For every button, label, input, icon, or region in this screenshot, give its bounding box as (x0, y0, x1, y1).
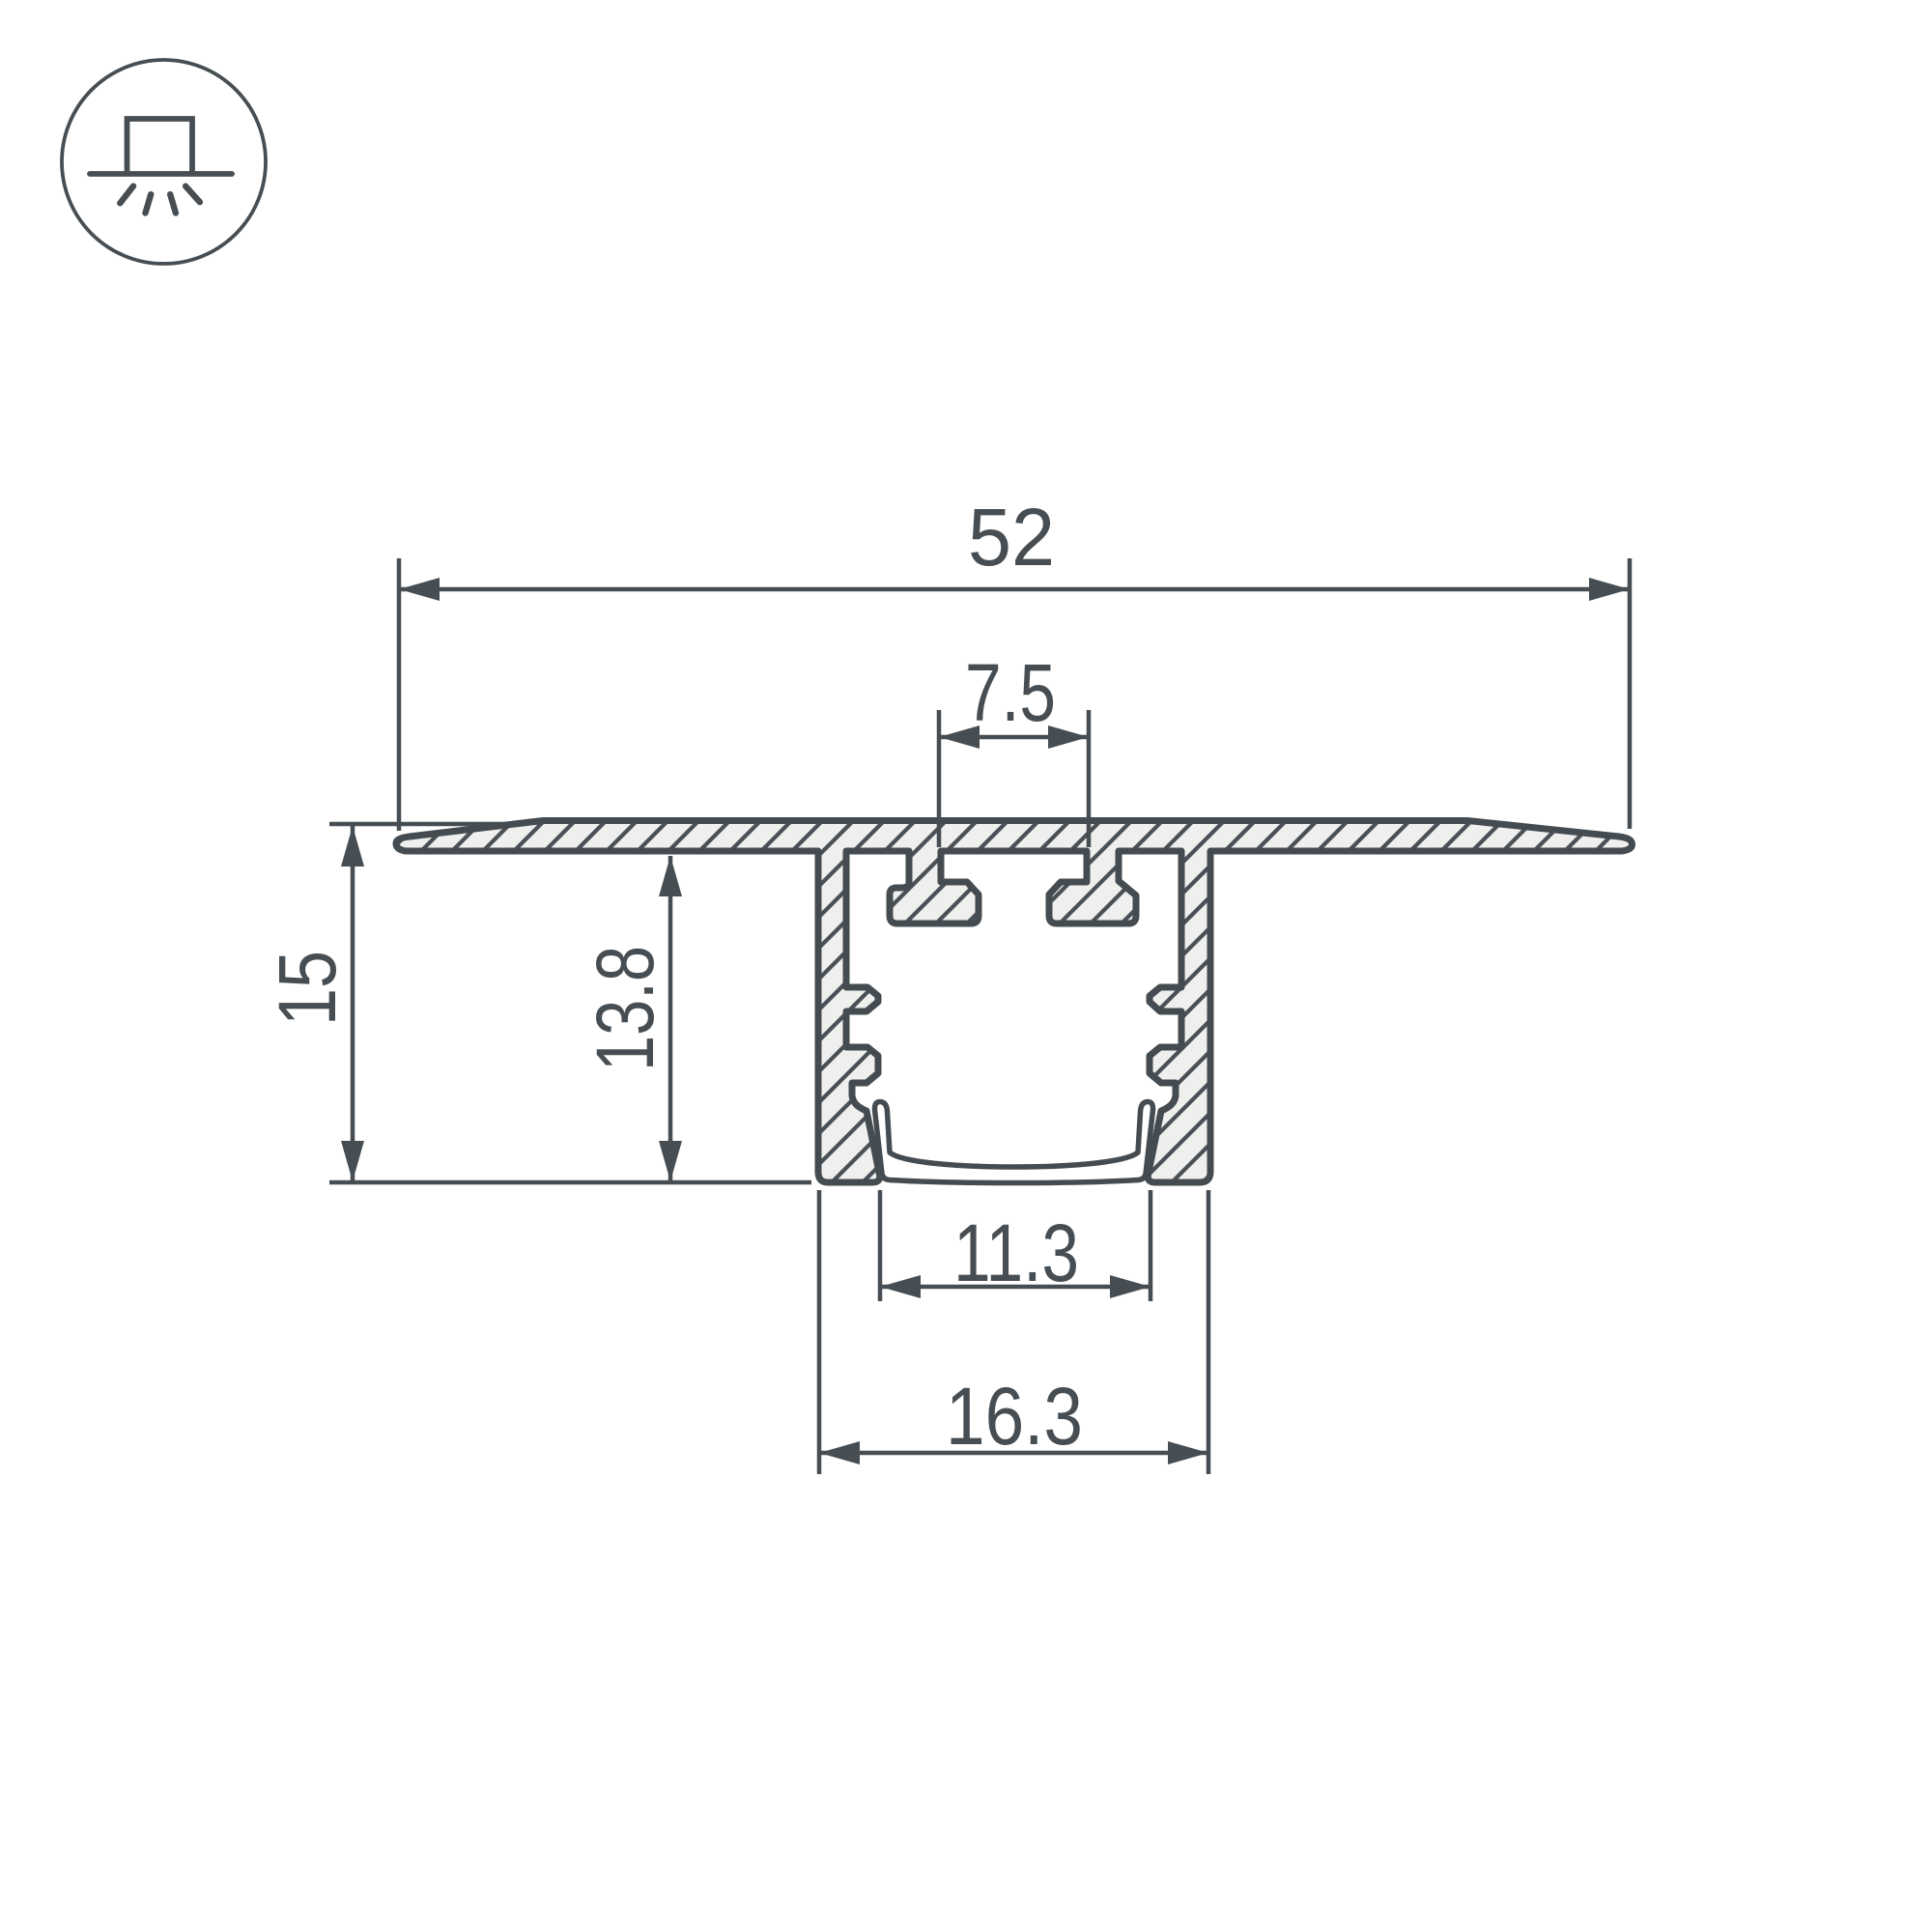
svg-text:7.5: 7.5 (965, 647, 1056, 738)
svg-text:52: 52 (968, 492, 1055, 582)
svg-text:11.3: 11.3 (953, 1207, 1079, 1298)
svg-text:13.8: 13.8 (580, 946, 670, 1071)
svg-text:15: 15 (262, 951, 353, 1026)
svg-text:16.3: 16.3 (946, 1371, 1083, 1462)
